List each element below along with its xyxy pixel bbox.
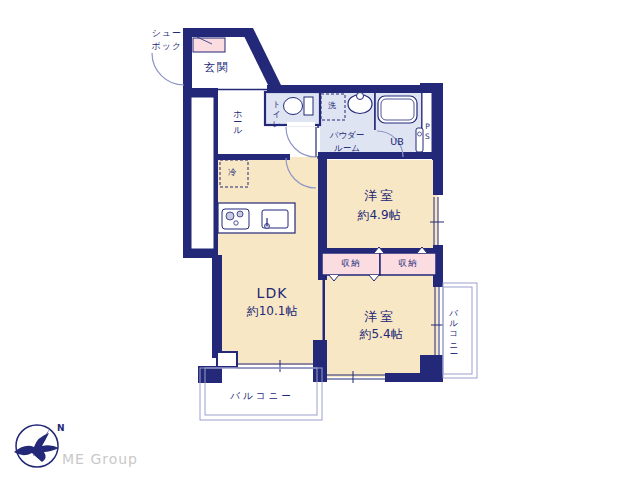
toilet-door-gap	[287, 122, 315, 126]
bedroom1-size: 約4.9帖	[344, 208, 414, 222]
bedroom1-name: 洋室	[350, 188, 410, 204]
wall-hall-ldk	[215, 154, 290, 160]
floor-plan-page: シューズ ボックス 玄関 ホール トイレ 洗 パウダー ルーム UB PS 冷 …	[0, 0, 640, 480]
powder-room-label-line1: パウダー	[319, 129, 375, 142]
wall-ldk-bedroom2-block	[313, 340, 327, 382]
wall-diagonal	[240, 28, 281, 85]
wall-bedroom2-bottom	[385, 373, 443, 382]
corner-window-box	[217, 352, 237, 367]
stove-icon	[222, 209, 249, 229]
bird-icon	[14, 433, 59, 462]
stove-burner-2	[237, 211, 243, 217]
refrigerator-label: 冷	[228, 167, 237, 177]
ldk-floor	[218, 157, 320, 365]
wall-ldk-bedroom1	[318, 155, 327, 253]
stove-burner-1	[226, 212, 234, 220]
wall-north	[267, 85, 443, 93]
stove-burner-3	[234, 221, 238, 225]
floor-plan-drawing	[0, 0, 640, 480]
wall-ldk-left	[212, 255, 222, 358]
wall-southwest-block	[198, 366, 222, 383]
toilet-door-arc	[286, 127, 316, 157]
bathtub-icon	[378, 96, 417, 123]
ldk-name: LDK	[242, 285, 302, 302]
west-void-inset	[191, 97, 214, 249]
laundry-label: 洗	[328, 101, 336, 111]
ldk-size: 約10.1帖	[237, 304, 307, 318]
balcony-right-label: バルコニー	[449, 303, 459, 352]
compass-north-label: N	[57, 423, 65, 434]
wall-east-mid1	[433, 155, 443, 195]
shoe-box-label-line2: ボックス	[140, 40, 204, 52]
unit-bath-label: UB	[384, 136, 410, 147]
toilet-bowl-icon	[284, 98, 303, 115]
bedroom2-size: 約5.4帖	[346, 327, 416, 341]
basin-faucet-icon	[357, 93, 364, 100]
pipe-space-label: PS	[423, 122, 432, 142]
balcony-bottom-label: バルコニー	[209, 390, 315, 401]
shoe-box-label-line1: シューズ	[140, 27, 204, 39]
me-group-logo	[14, 425, 59, 467]
powder-room-label-line2: ルーム	[319, 142, 375, 155]
bedroom1-floor	[327, 160, 438, 253]
wall-ldk-bedroom2-slim	[323, 278, 326, 340]
entrance-door-arc	[152, 53, 184, 85]
toilet-tank-icon	[304, 97, 313, 115]
logo-text: ME Group	[62, 451, 138, 467]
bedroom2-name: 洋室	[350, 309, 410, 325]
toilet-label: トイレ	[271, 95, 281, 125]
wall-east-upper	[432, 85, 443, 160]
storage-right-label: 収納	[379, 258, 437, 268]
bath-counter-icon	[416, 128, 423, 152]
storage-left-label: 収納	[322, 258, 380, 268]
hall-label: ホール	[232, 104, 243, 134]
entrance-label: 玄関	[204, 61, 230, 74]
